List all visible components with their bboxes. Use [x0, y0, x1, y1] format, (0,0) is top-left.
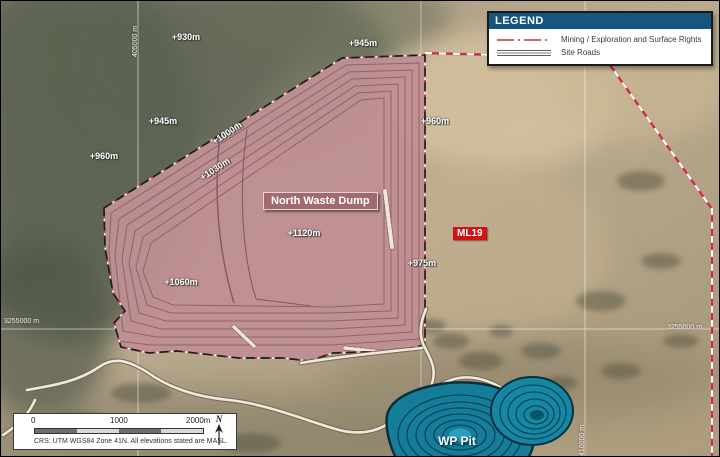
north-label: N	[212, 415, 226, 424]
mining-rights-line-icon	[495, 36, 553, 44]
scale-tick: 0	[31, 416, 35, 425]
scale-tick: 1000	[110, 416, 128, 425]
wp-pit-label: WP Pit	[438, 434, 476, 448]
elevation-label: +945m	[149, 116, 177, 126]
grid-label-northing-right: 3255000 m	[667, 324, 702, 331]
grid-label-easting-right: 410000 m	[579, 425, 586, 456]
secondary-pit	[491, 377, 573, 445]
elevation-label: +960m	[421, 116, 449, 126]
map-figure: +930m +945m +945m +960m +1000m +1030m +9…	[0, 0, 720, 457]
elevation-label: +930m	[172, 32, 200, 42]
grid-label-northing-left: 3255000 m	[4, 318, 39, 325]
elevation-label: +960m	[90, 151, 118, 161]
legend-title: LEGEND	[489, 13, 711, 29]
waste-dump-label: North Waste Dump	[263, 192, 378, 210]
legend-panel: LEGEND Mining / Exploration and Surface …	[487, 11, 713, 66]
crs-note: CRS: UTM WGS84 Zone 41N. All elevations …	[34, 438, 228, 445]
legend-item-label: Mining / Exploration and Surface Rights	[561, 35, 702, 44]
ml19-badge: ML19	[453, 227, 487, 240]
legend-item-label: Site Roads	[561, 48, 600, 57]
north-arrow: N	[212, 415, 226, 451]
north-arrow-icon	[213, 424, 225, 446]
site-roads-icon	[495, 49, 553, 57]
elevation-label: +1060m	[164, 277, 197, 287]
grid-label-easting-top: 405000 m	[132, 26, 139, 57]
elevation-label: +1120m	[288, 228, 321, 238]
elevation-label: +975m	[408, 258, 436, 268]
scale-bar	[34, 428, 204, 434]
scale-panel: 0 1000 2000m CRS: UTM WGS84 Zone 41N. Al…	[13, 413, 237, 450]
scale-tick: 2000m	[186, 416, 210, 425]
elevation-label: +945m	[349, 38, 377, 48]
legend-item-site-roads: Site Roads	[495, 46, 705, 59]
map-canvas	[1, 1, 720, 457]
legend-item-mining-rights: Mining / Exploration and Surface Rights	[495, 33, 705, 46]
